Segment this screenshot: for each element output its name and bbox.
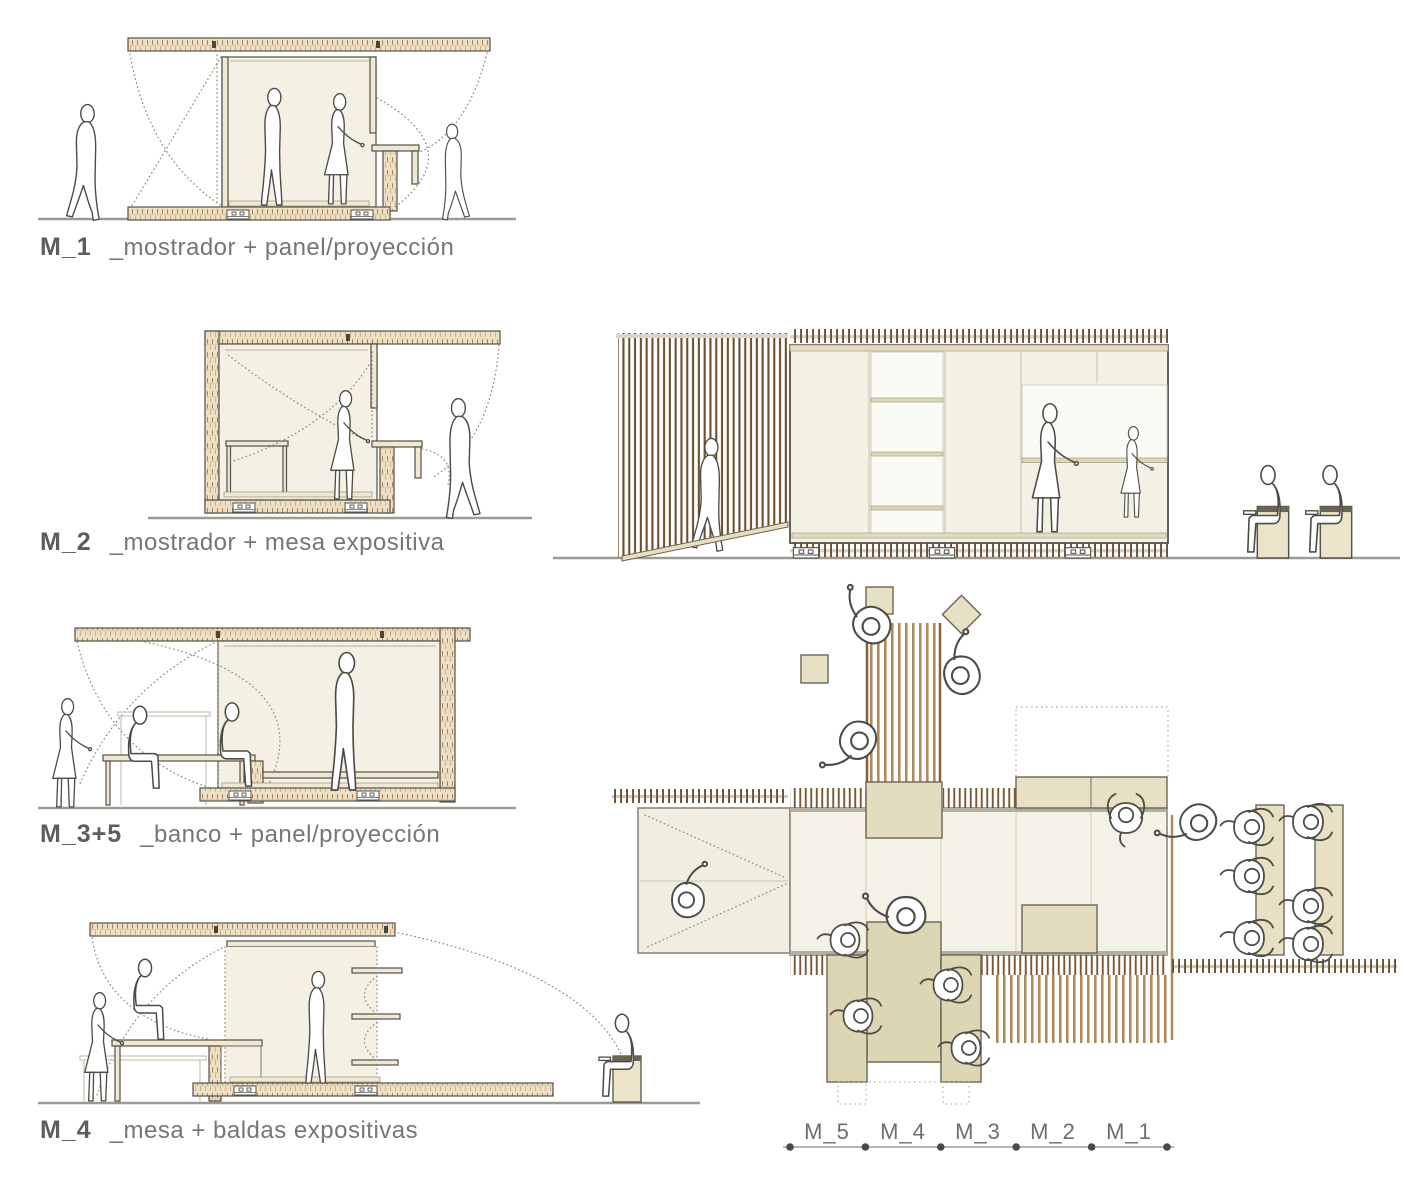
shelf (871, 506, 943, 510)
scale-label-m3: M_3 (955, 1119, 1001, 1144)
leveling-foot (351, 210, 373, 219)
stool-plan (801, 655, 828, 683)
counter-support (383, 151, 397, 211)
stool (1320, 506, 1351, 558)
label-m2-desc: _mostrador + mesa expositiva (110, 529, 445, 557)
person-ghost-seated (129, 706, 160, 788)
module-room (222, 57, 376, 207)
floor-boards (230, 1077, 380, 1082)
pergola-walkway (866, 623, 941, 782)
roof-beam (90, 923, 395, 936)
label-m3-5-code: M_3+5 (40, 820, 122, 849)
display-shelf (352, 1014, 400, 1019)
roof-slat-ends (790, 329, 1168, 343)
label-m1-desc: _mostrador + panel/proyección (110, 234, 455, 262)
slat-band-left (612, 789, 788, 803)
person-woman (53, 699, 92, 807)
leveling-foot (355, 1086, 377, 1095)
side-wall (440, 628, 455, 802)
leveling-foot (233, 503, 255, 512)
section-m4-drawing (38, 923, 700, 1103)
label-m4-code: M_4 (40, 1116, 92, 1145)
leveling-foot (357, 791, 379, 800)
fascia (790, 345, 1168, 351)
person-ghost-seated (134, 959, 164, 1039)
floor-plan-drawing: M_5 M_4 M_3 M_2 M_1 (612, 584, 1397, 1151)
leveling-foot (234, 1086, 256, 1095)
module-scale-bar: M_5 M_4 M_3 M_2 M_1 (783, 1119, 1174, 1151)
leveling-foot (227, 210, 249, 219)
screen-rail (616, 334, 788, 338)
slat-fringe (943, 788, 1016, 808)
label-m1-code: M_1 (40, 233, 92, 262)
dotted-trace (943, 1082, 969, 1104)
section-m1-drawing (38, 38, 516, 220)
counter-front (412, 151, 418, 184)
label-m1: M_1 _mostrador + panel/proyección (40, 233, 454, 262)
label-m2-code: M_2 (40, 528, 92, 557)
stool (1257, 506, 1288, 558)
section-m2-drawing (148, 331, 532, 518)
elevation-drawing (553, 329, 1400, 561)
shelf (871, 452, 943, 456)
counter-front (415, 447, 421, 478)
label-m2: M_2 _mostrador + mesa expositiva (40, 528, 444, 557)
ceiling-panel (227, 941, 375, 947)
scale-label-m4: M_4 (880, 1119, 926, 1144)
label-m3-5-desc: _banco + panel/proyección (140, 821, 440, 849)
floor-boards (792, 533, 1166, 538)
label-m4-desc: _mesa + baldas expositivas (110, 1117, 419, 1145)
leveling-foot (345, 503, 367, 512)
drawing-sheet: M_5 M_4 M_3 M_2 M_1 M_1 _mostrador + pan… (0, 0, 1404, 1200)
base-slat-ends (790, 543, 1168, 557)
person-walking (443, 124, 470, 220)
roof-beam (205, 331, 500, 344)
leveling-foot (793, 548, 818, 558)
slat-fringe (790, 788, 866, 808)
side-wall (205, 331, 219, 513)
mesa-plan (1022, 905, 1097, 953)
counter-top (372, 441, 422, 447)
shelf (871, 398, 943, 402)
dotted-module-outline (1016, 707, 1168, 777)
module-room (219, 344, 377, 500)
counter-module-plan (866, 782, 942, 838)
slat-band-right (1172, 959, 1397, 973)
table-module-plan (867, 922, 941, 1062)
roof-beam (75, 628, 470, 641)
counter-top (372, 145, 419, 151)
roof-beam (128, 38, 490, 51)
scale-label-m2: M_2 (1030, 1119, 1076, 1144)
display-shelf (352, 968, 402, 973)
exhibit-table (226, 441, 288, 446)
slat-screen-plan (995, 975, 1168, 1043)
stool-plan-rotated (942, 595, 980, 633)
floor-boards (229, 201, 369, 206)
display-shelf (352, 1060, 398, 1065)
floor-boards (222, 783, 438, 788)
section-m3-5-drawing (38, 628, 516, 808)
person-walking (446, 399, 480, 519)
leveling-foot (929, 548, 954, 558)
scale-label-m5: M_5 (804, 1119, 850, 1144)
leveling-foot (1065, 548, 1090, 558)
scale-label-m1: M_1 (1106, 1119, 1152, 1144)
architectural-drawing: M_5 M_4 M_3 M_2 M_1 (0, 0, 1404, 1200)
label-m4: M_4 _mesa + baldas expositivas (40, 1116, 418, 1145)
table-top (112, 1040, 262, 1046)
dotted-trace (838, 1082, 866, 1104)
leveling-foot (229, 791, 251, 800)
label-m3-5: M_3+5 _banco + panel/proyección (40, 820, 440, 849)
person-walking (67, 105, 99, 221)
